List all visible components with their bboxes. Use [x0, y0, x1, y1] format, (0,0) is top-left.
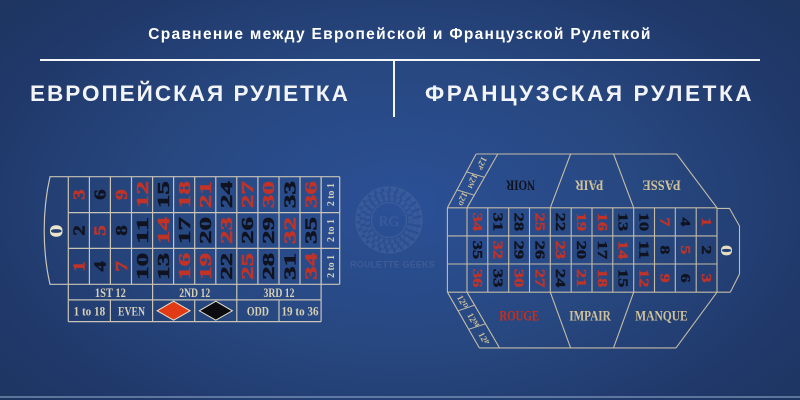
svg-text:34: 34 [301, 253, 320, 280]
svg-text:1: 1 [70, 261, 89, 272]
svg-text:24: 24 [217, 181, 236, 208]
svg-text:10: 10 [133, 253, 152, 280]
svg-text:26: 26 [532, 241, 547, 260]
svg-text:33: 33 [280, 181, 299, 208]
svg-text:16: 16 [595, 213, 610, 232]
svg-text:22: 22 [217, 253, 236, 280]
svg-text:3: 3 [70, 189, 89, 200]
svg-text:9: 9 [112, 189, 131, 200]
svg-text:35: 35 [301, 217, 320, 244]
svg-text:12M: 12M [464, 172, 480, 190]
svg-text:31: 31 [280, 253, 299, 280]
svg-text:12: 12 [636, 269, 651, 288]
svg-text:5: 5 [678, 245, 693, 255]
svg-text:3RD 12: 3RD 12 [264, 285, 295, 300]
svg-text:15: 15 [154, 181, 173, 208]
svg-text:23: 23 [217, 217, 236, 244]
svg-text:20: 20 [196, 217, 215, 244]
svg-text:PASSE: PASSE [642, 176, 681, 192]
svg-text:19 to 36: 19 to 36 [282, 304, 319, 319]
svg-text:9: 9 [657, 274, 672, 284]
svg-text:31: 31 [491, 213, 506, 232]
svg-text:2 to 1: 2 to 1 [326, 183, 337, 206]
svg-text:13: 13 [616, 213, 631, 232]
svg-text:0: 0 [717, 245, 736, 257]
svg-text:20: 20 [574, 241, 589, 260]
svg-text:1 to 18: 1 to 18 [74, 304, 106, 319]
svg-text:7: 7 [112, 261, 131, 272]
svg-text:30: 30 [511, 269, 526, 288]
svg-text:29: 29 [511, 241, 526, 260]
svg-text:12P: 12P [476, 330, 491, 346]
svg-text:21: 21 [574, 269, 589, 288]
svg-text:2 to 1: 2 to 1 [326, 255, 337, 278]
svg-text:12: 12 [133, 181, 152, 208]
svg-text:8: 8 [657, 245, 672, 255]
svg-text:0: 0 [47, 224, 68, 238]
svg-text:NOIR: NOIR [506, 176, 535, 192]
svg-text:7: 7 [657, 217, 672, 227]
svg-text:IMPAIR: IMPAIR [569, 309, 611, 325]
svg-text:25: 25 [532, 213, 547, 232]
svg-text:22: 22 [553, 213, 568, 232]
svg-text:ROUGE: ROUGE [499, 309, 539, 325]
svg-text:10: 10 [636, 213, 651, 232]
svg-text:17: 17 [595, 241, 610, 260]
svg-text:35: 35 [470, 241, 485, 260]
svg-text:27: 27 [238, 181, 257, 208]
svg-text:8: 8 [112, 225, 131, 236]
svg-text:1ST 12: 1ST 12 [95, 285, 126, 300]
svg-text:ODD: ODD [247, 304, 269, 319]
svg-text:4: 4 [91, 261, 110, 272]
svg-text:27: 27 [532, 269, 547, 288]
svg-text:15: 15 [616, 269, 631, 288]
svg-text:4: 4 [678, 217, 693, 227]
svg-text:1: 1 [699, 217, 714, 226]
svg-text:32: 32 [491, 241, 506, 260]
svg-text:16: 16 [175, 253, 194, 280]
svg-text:PAIR: PAIR [575, 176, 604, 192]
svg-text:36: 36 [301, 181, 320, 208]
svg-text:EVEN: EVEN [118, 304, 145, 319]
svg-text:32: 32 [280, 217, 299, 244]
svg-text:28: 28 [511, 213, 526, 232]
svg-text:28: 28 [259, 253, 278, 280]
svg-text:23: 23 [553, 241, 568, 260]
svg-text:21: 21 [196, 181, 215, 208]
svg-text:17: 17 [175, 217, 194, 244]
svg-text:6: 6 [91, 189, 110, 200]
svg-text:18: 18 [175, 181, 194, 208]
svg-text:2: 2 [699, 245, 714, 255]
svg-text:25: 25 [238, 253, 257, 280]
svg-text:33: 33 [491, 269, 506, 288]
svg-text:RG: RG [379, 214, 400, 230]
svg-text:11: 11 [636, 241, 651, 260]
svg-text:2ND 12: 2ND 12 [179, 285, 210, 300]
svg-text:13: 13 [154, 253, 173, 280]
svg-text:29: 29 [259, 217, 278, 244]
svg-text:14: 14 [616, 241, 631, 260]
svg-text:11: 11 [133, 217, 152, 244]
svg-text:30: 30 [259, 181, 278, 208]
svg-text:14: 14 [154, 217, 173, 244]
svg-text:2 to 1: 2 to 1 [326, 219, 337, 242]
svg-text:2: 2 [70, 225, 89, 236]
svg-text:6: 6 [678, 274, 693, 284]
svg-text:3: 3 [699, 274, 714, 284]
svg-text:12P: 12P [474, 155, 489, 171]
svg-text:12D: 12D [454, 190, 469, 207]
svg-text:18: 18 [595, 269, 610, 288]
svg-text:34: 34 [470, 213, 485, 232]
svg-text:5: 5 [91, 225, 110, 236]
svg-text:ROULETTE GEEKS: ROULETTE GEEKS [350, 260, 435, 270]
svg-text:19: 19 [196, 253, 215, 280]
svg-text:36: 36 [470, 269, 485, 288]
svg-text:24: 24 [553, 269, 568, 288]
svg-text:19: 19 [574, 213, 589, 232]
svg-text:MANQUE: MANQUE [635, 309, 688, 325]
svg-text:26: 26 [238, 217, 257, 244]
